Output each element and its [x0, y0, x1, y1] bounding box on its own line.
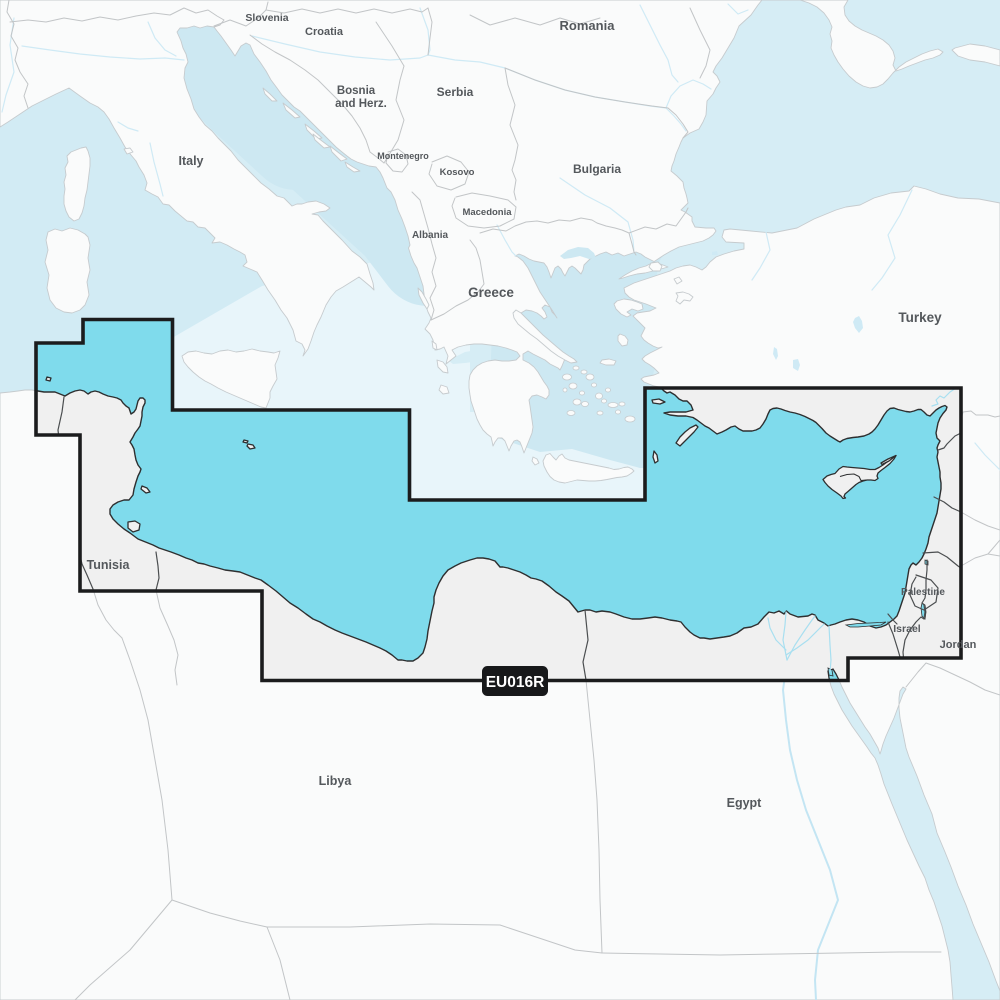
svg-text:Israel: Israel [893, 623, 921, 635]
svg-text:EU016R: EU016R [486, 674, 545, 691]
svg-text:Kosovo: Kosovo [440, 167, 475, 178]
svg-text:Turkey: Turkey [898, 310, 942, 325]
svg-text:Libya: Libya [319, 774, 353, 788]
svg-text:Croatia: Croatia [305, 26, 344, 38]
svg-text:Jordan: Jordan [940, 639, 977, 651]
svg-text:Albania: Albania [412, 230, 449, 241]
svg-text:Tunisia: Tunisia [87, 558, 131, 572]
svg-text:Slovenia: Slovenia [245, 12, 288, 24]
svg-text:Bulgaria: Bulgaria [573, 162, 621, 176]
svg-text:Egypt: Egypt [727, 796, 763, 810]
svg-text:and Herz.: and Herz. [335, 98, 387, 110]
svg-text:Italy: Italy [178, 154, 203, 168]
svg-text:Romania: Romania [560, 18, 616, 33]
svg-text:Montenegro: Montenegro [377, 151, 429, 161]
svg-text:Greece: Greece [468, 285, 514, 300]
svg-text:Serbia: Serbia [437, 85, 474, 99]
svg-text:Bosnia: Bosnia [337, 85, 376, 97]
svg-text:Palestine: Palestine [901, 587, 945, 598]
svg-text:Macedonia: Macedonia [462, 207, 512, 218]
